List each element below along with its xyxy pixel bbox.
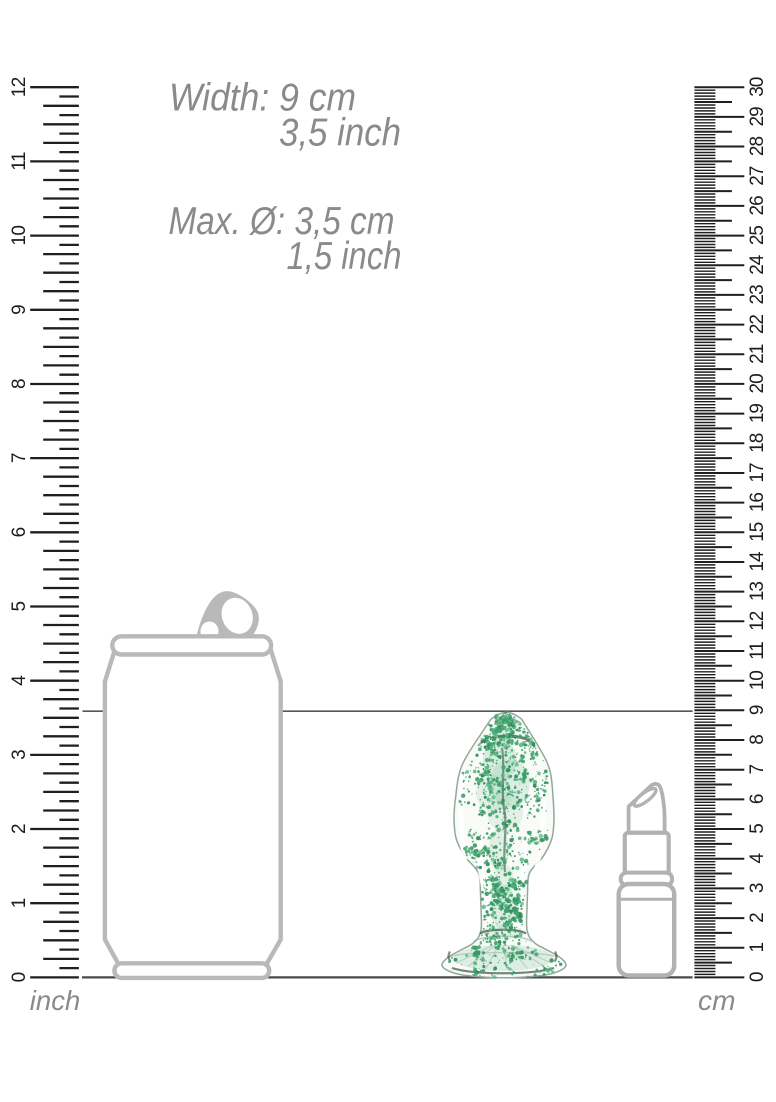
- svg-text:7: 7: [747, 764, 768, 774]
- svg-text:1,5 inch: 1,5 inch: [287, 235, 402, 278]
- svg-text:14: 14: [747, 551, 768, 572]
- svg-text:23: 23: [747, 285, 768, 305]
- svg-text:25: 25: [747, 226, 768, 246]
- svg-text:28: 28: [747, 137, 768, 157]
- svg-text:5: 5: [747, 824, 768, 834]
- svg-text:inch: inch: [30, 985, 81, 1016]
- svg-text:7: 7: [9, 453, 30, 463]
- svg-text:22: 22: [747, 315, 768, 335]
- svg-text:5: 5: [9, 601, 30, 611]
- svg-text:16: 16: [747, 493, 768, 513]
- svg-text:3: 3: [9, 750, 30, 760]
- svg-text:9: 9: [747, 705, 768, 715]
- svg-text:1: 1: [747, 942, 768, 952]
- svg-text:6: 6: [9, 527, 30, 537]
- svg-text:10: 10: [747, 671, 768, 691]
- svg-text:29: 29: [747, 107, 768, 127]
- svg-text:21: 21: [747, 344, 768, 364]
- svg-text:cm: cm: [698, 985, 736, 1016]
- svg-text:8: 8: [9, 379, 30, 389]
- svg-text:19: 19: [747, 404, 768, 424]
- svg-text:24: 24: [747, 254, 768, 275]
- svg-text:3: 3: [747, 883, 768, 893]
- svg-text:11: 11: [747, 642, 768, 660]
- svg-text:18: 18: [747, 433, 768, 453]
- svg-text:20: 20: [747, 374, 768, 394]
- svg-text:3,5 inch: 3,5 inch: [279, 112, 401, 155]
- svg-text:12: 12: [747, 611, 768, 631]
- svg-text:0: 0: [9, 972, 30, 982]
- svg-text:6: 6: [747, 794, 768, 804]
- svg-text:26: 26: [747, 196, 768, 216]
- svg-text:13: 13: [747, 582, 768, 602]
- svg-text:17: 17: [747, 463, 768, 483]
- svg-text:11: 11: [9, 152, 30, 171]
- svg-text:4: 4: [9, 675, 30, 686]
- svg-text:15: 15: [747, 522, 768, 542]
- svg-text:2: 2: [747, 913, 768, 923]
- svg-text:12: 12: [9, 77, 30, 97]
- svg-text:27: 27: [747, 166, 768, 186]
- svg-text:9: 9: [9, 305, 30, 315]
- svg-text:8: 8: [747, 735, 768, 745]
- svg-text:2: 2: [9, 824, 30, 834]
- svg-text:30: 30: [747, 77, 768, 97]
- svg-text:1: 1: [9, 898, 30, 908]
- svg-text:4: 4: [747, 852, 768, 863]
- svg-text:0: 0: [747, 972, 768, 982]
- svg-text:10: 10: [9, 226, 30, 246]
